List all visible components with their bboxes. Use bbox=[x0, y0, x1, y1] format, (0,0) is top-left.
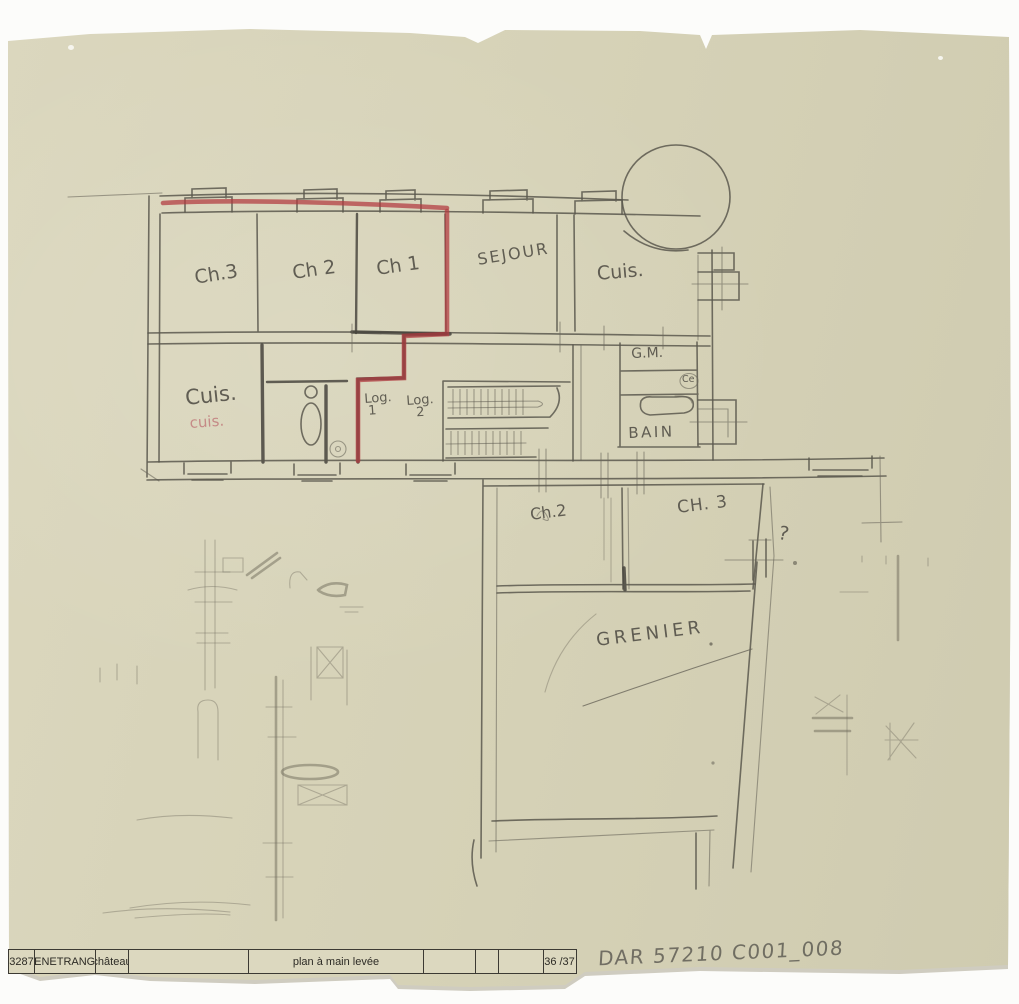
right-margin-sketch-marks bbox=[813, 556, 928, 775]
attic-floor-plan-drawing bbox=[472, 480, 797, 889]
title-block-drawing-type: plan à main levée bbox=[249, 950, 424, 973]
title-block-number: 3287 bbox=[9, 950, 35, 973]
window-symbol-right-upper bbox=[698, 253, 739, 300]
title-block-empty-3 bbox=[476, 950, 499, 973]
room-label-cuisine-left-red: cuis. bbox=[189, 412, 225, 432]
room-label-gm: G.M. bbox=[631, 345, 663, 362]
room-label-log2: Log. 2 bbox=[406, 394, 435, 421]
room-label-cuisine-right: Cuis. bbox=[596, 259, 644, 285]
title-block-place: FENETRANGE bbox=[35, 950, 96, 973]
room-label-log1: Log. 1 bbox=[364, 392, 393, 419]
upper-floor-plan-drawing bbox=[68, 145, 902, 582]
title-block-empty-4 bbox=[499, 950, 544, 973]
title-block-empty-1 bbox=[129, 950, 249, 973]
room-label-bain: BAIN bbox=[628, 422, 675, 442]
title-block: 3287 FENETRANGE château plan à main levé… bbox=[8, 949, 577, 974]
title-block-empty-2 bbox=[424, 950, 476, 973]
door-swing-mark bbox=[330, 441, 346, 457]
title-block-sheet-number: 36 /37 bbox=[544, 950, 575, 973]
room-label-ce: Ce bbox=[682, 374, 694, 385]
pencil-drawing bbox=[0, 0, 1019, 1000]
tower-drawing bbox=[622, 145, 730, 251]
bathtub-fixture bbox=[640, 397, 693, 415]
stairs-drawing bbox=[443, 381, 570, 461]
title-block-building: château bbox=[96, 950, 129, 973]
wc-fixture bbox=[301, 403, 321, 445]
faint-sketch-drawing bbox=[100, 540, 363, 920]
